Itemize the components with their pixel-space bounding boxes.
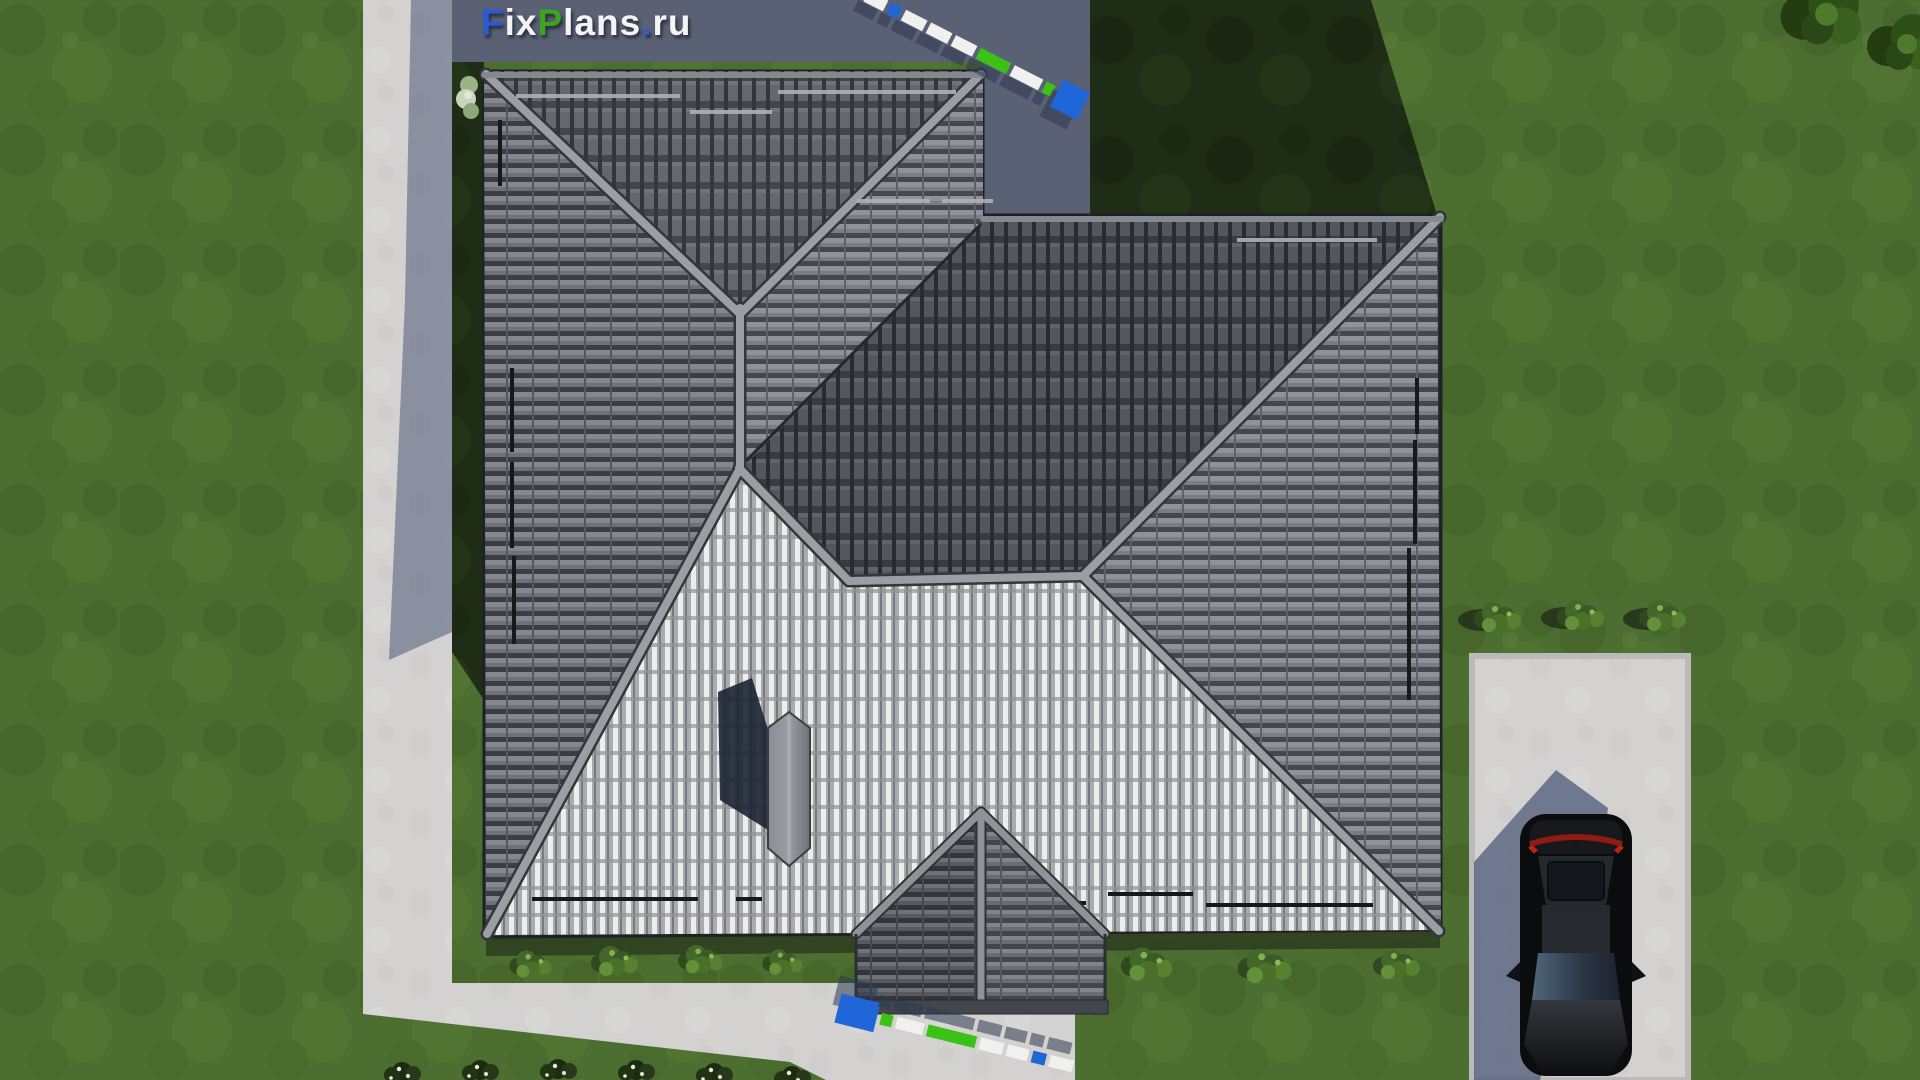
porch-fascia: [853, 1000, 1108, 1014]
scene-canvas: [0, 0, 1920, 1080]
car-sunroof: [1548, 862, 1604, 900]
car-hood: [1524, 1000, 1628, 1074]
aerial-house-render: FixPlans.ru: [0, 0, 1920, 1080]
logo-part: ru: [652, 2, 691, 44]
car-windshield: [1532, 953, 1620, 1000]
shadow-grass-leftstrip: [452, 62, 484, 700]
logo-part: .: [641, 2, 652, 44]
logo-part: lans: [563, 2, 641, 44]
logo-part: F: [481, 2, 505, 44]
site-logo: FixPlans.ru: [481, 2, 691, 44]
logo-part: ix: [505, 2, 538, 44]
car-roof: [1542, 905, 1610, 953]
logo-part: P: [537, 2, 563, 44]
